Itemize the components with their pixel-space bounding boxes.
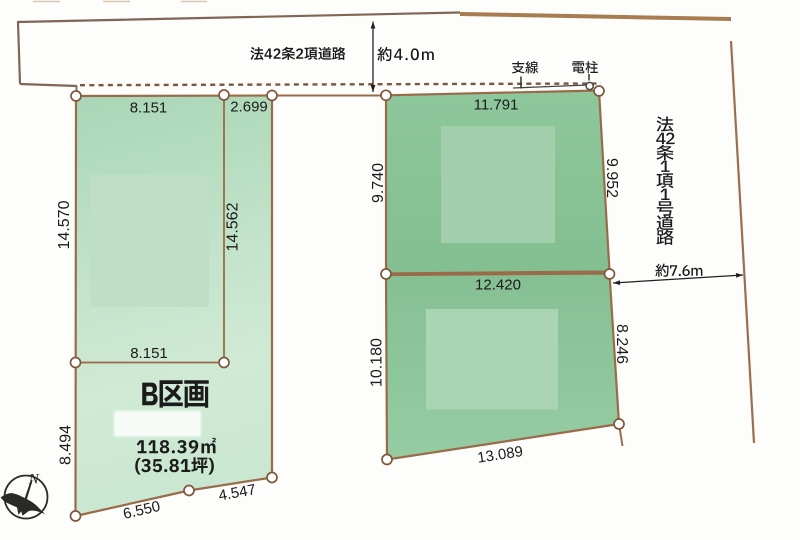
svg-text:8.494: 8.494: [57, 425, 74, 465]
svg-text:14.562: 14.562: [224, 202, 241, 251]
svg-text:8.151: 8.151: [130, 99, 168, 116]
svg-text:9.952: 9.952: [603, 158, 620, 198]
svg-text:9.740: 9.740: [370, 163, 387, 203]
svg-text:11.791: 11.791: [474, 96, 519, 113]
svg-text:14.570: 14.570: [56, 200, 73, 249]
svg-text:8.246: 8.246: [613, 324, 630, 364]
svg-text:10.180: 10.180: [368, 338, 385, 387]
svg-text:12.420: 12.420: [475, 276, 521, 293]
svg-text:8.151: 8.151: [130, 345, 168, 362]
svg-text:2.699: 2.699: [230, 98, 268, 115]
svg-text:N: N: [28, 472, 40, 488]
